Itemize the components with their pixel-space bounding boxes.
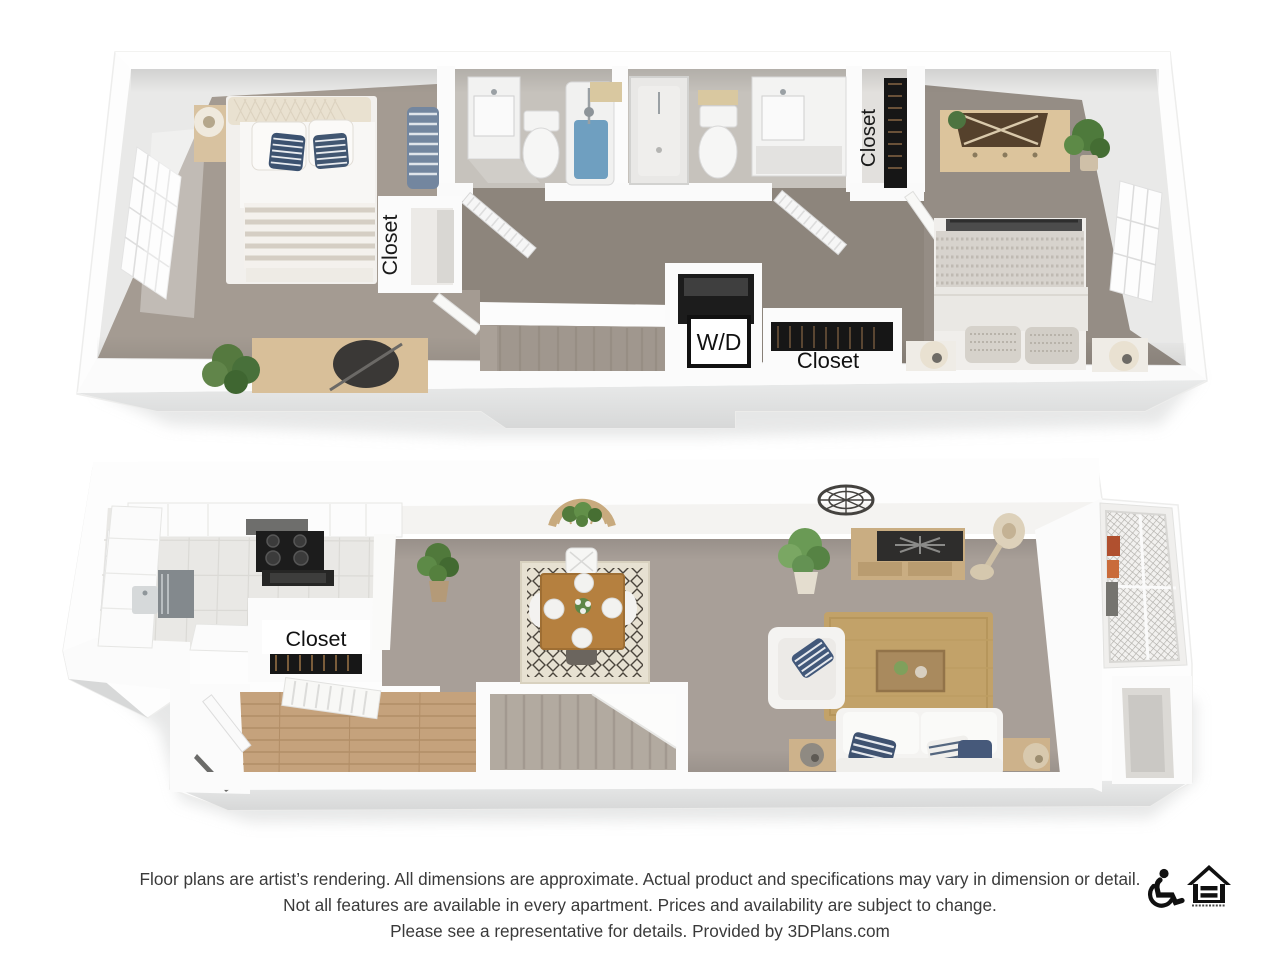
svg-text:Please see a representative fo: Please see a representative for details.… [390, 921, 890, 941]
svg-text:Closet: Closet [857, 109, 880, 167]
svg-text:Closet: Closet [378, 215, 402, 276]
svg-text:W/D: W/D [697, 329, 742, 355]
svg-text:Floor plans are artist’s rende: Floor plans are artist’s rendering. All … [140, 869, 1141, 889]
svg-text:Closet: Closet [797, 348, 859, 373]
svg-text:Not all features are available: Not all features are available in every … [283, 895, 997, 915]
svg-text:Closet: Closet [286, 627, 347, 651]
